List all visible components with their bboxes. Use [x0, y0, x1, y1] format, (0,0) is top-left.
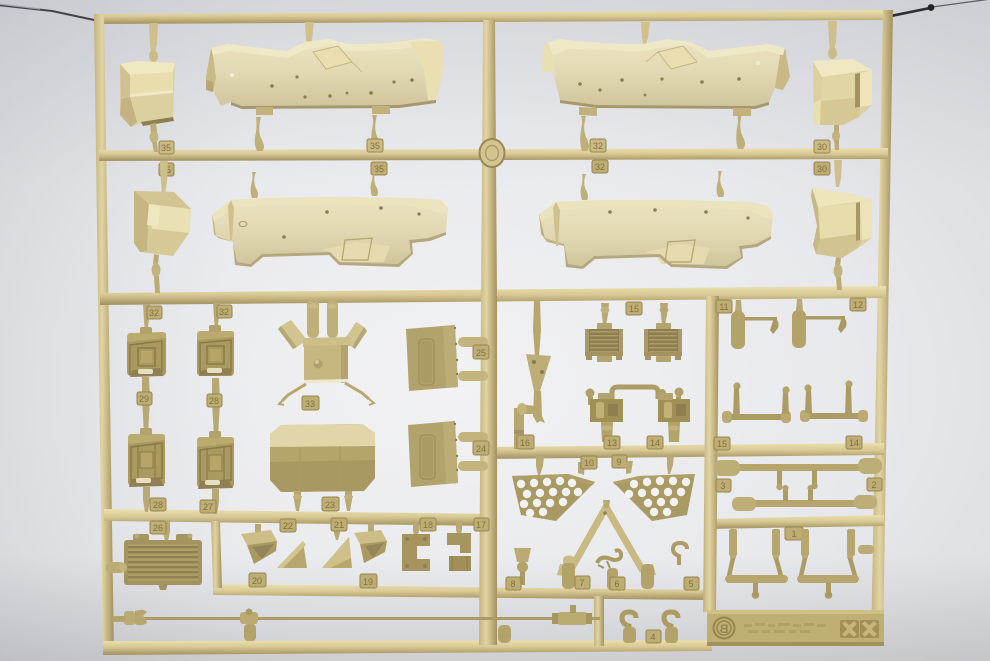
svg-text:25: 25 — [476, 348, 486, 358]
svg-text:20: 20 — [252, 576, 262, 586]
svg-text:1: 1 — [791, 529, 796, 539]
svg-text:13: 13 — [607, 438, 617, 448]
svg-text:30: 30 — [817, 164, 827, 174]
svg-text:17: 17 — [476, 520, 486, 530]
svg-text:11: 11 — [719, 302, 728, 312]
svg-text:24: 24 — [476, 444, 486, 454]
svg-text:28: 28 — [209, 396, 219, 406]
svg-text:23: 23 — [325, 500, 335, 510]
svg-text:15: 15 — [629, 304, 639, 314]
svg-text:35: 35 — [161, 143, 171, 153]
svg-text:22: 22 — [283, 521, 293, 531]
svg-text:16: 16 — [520, 438, 530, 448]
svg-text:9: 9 — [616, 457, 621, 467]
svg-text:6: 6 — [614, 579, 619, 589]
svg-text:4: 4 — [650, 632, 655, 642]
svg-text:30: 30 — [817, 142, 827, 152]
svg-text:19: 19 — [363, 577, 373, 587]
svg-text:21: 21 — [334, 520, 344, 530]
svg-text:5: 5 — [688, 579, 693, 589]
svg-text:8: 8 — [510, 579, 515, 589]
svg-text:33: 33 — [305, 399, 315, 409]
svg-text:7: 7 — [579, 578, 584, 588]
svg-text:35: 35 — [370, 141, 380, 151]
svg-text:27: 27 — [203, 502, 213, 512]
svg-text:2: 2 — [871, 480, 876, 490]
svg-text:18: 18 — [423, 520, 433, 530]
svg-text:15: 15 — [717, 439, 727, 449]
svg-text:3: 3 — [720, 481, 725, 491]
svg-text:14: 14 — [650, 438, 660, 448]
svg-text:26: 26 — [153, 523, 163, 533]
svg-text:32: 32 — [149, 308, 159, 318]
svg-text:12: 12 — [853, 300, 863, 310]
svg-text:29: 29 — [139, 394, 149, 404]
svg-text:32: 32 — [593, 141, 603, 151]
svg-text:14: 14 — [849, 438, 859, 448]
svg-text:35: 35 — [374, 164, 384, 174]
svg-text:32: 32 — [219, 307, 229, 317]
svg-text:28: 28 — [153, 500, 163, 510]
svg-text:B: B — [719, 622, 728, 636]
svg-text:32: 32 — [595, 162, 605, 172]
svg-text:10: 10 — [584, 458, 594, 468]
